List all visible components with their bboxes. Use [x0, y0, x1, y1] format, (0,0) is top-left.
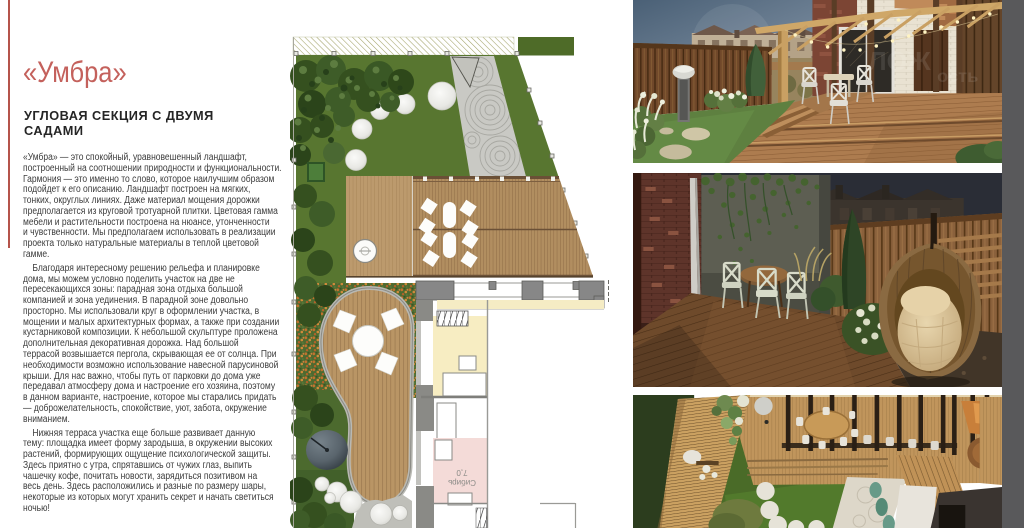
- svg-text:7,0: 7,0: [456, 468, 468, 477]
- svg-text:ЛОЖ: ЛОЖ: [868, 46, 931, 76]
- svg-text:ость: ость: [937, 66, 978, 86]
- svg-text:Сибирь: Сибирь: [448, 478, 476, 487]
